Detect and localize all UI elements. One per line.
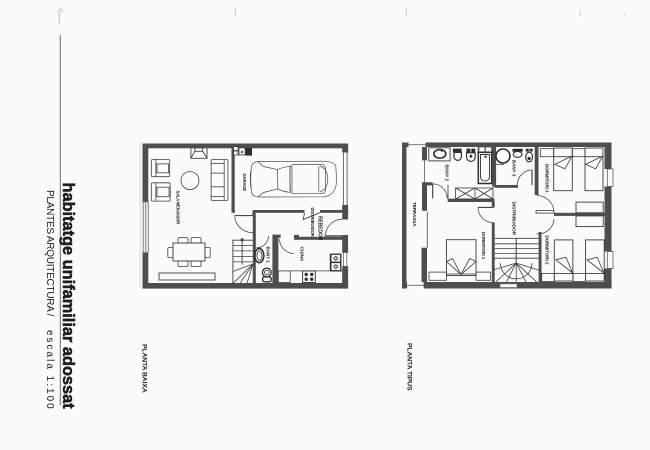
svg-text:DORMITORI 3: DORMITORI 3 bbox=[545, 164, 550, 193]
svg-text:habitatge unifamiliar adossat: habitatge unifamiliar adossat bbox=[59, 183, 77, 410]
svg-text:REBEDOR: REBEDOR bbox=[317, 216, 323, 241]
svg-text:escala 1:100: escala 1:100 bbox=[44, 330, 55, 411]
svg-text:BANY 2: BANY 2 bbox=[445, 165, 450, 182]
svg-text:GARAGE: GARAGE bbox=[242, 174, 247, 192]
svg-text:DORMITORI 2: DORMITORI 2 bbox=[544, 236, 549, 265]
svg-text:PLANTES ARQUITECTURA /: PLANTES ARQUITECTURA / bbox=[44, 190, 55, 317]
svg-text:SALA MENJADOR: SALA MENJADOR bbox=[175, 191, 180, 225]
svg-text:DISTRIBUIDOR: DISTRIBUIDOR bbox=[511, 202, 517, 236]
svg-text:CUINA: CUINA bbox=[298, 247, 304, 262]
svg-text:BANY 1: BANY 1 bbox=[266, 247, 271, 264]
svg-text:PLANTA TIPUS: PLANTA TIPUS bbox=[406, 343, 413, 391]
svg-text:BANY 3: BANY 3 bbox=[512, 160, 517, 177]
svg-text:DISTRIBUIDOR: DISTRIBUIDOR bbox=[310, 208, 315, 237]
svg-text:DORMITORI 1: DORMITORI 1 bbox=[481, 232, 486, 260]
svg-text:PLANTA BAIXA: PLANTA BAIXA bbox=[141, 344, 148, 393]
svg-text:TERRASSA: TERRASSA bbox=[412, 202, 417, 227]
